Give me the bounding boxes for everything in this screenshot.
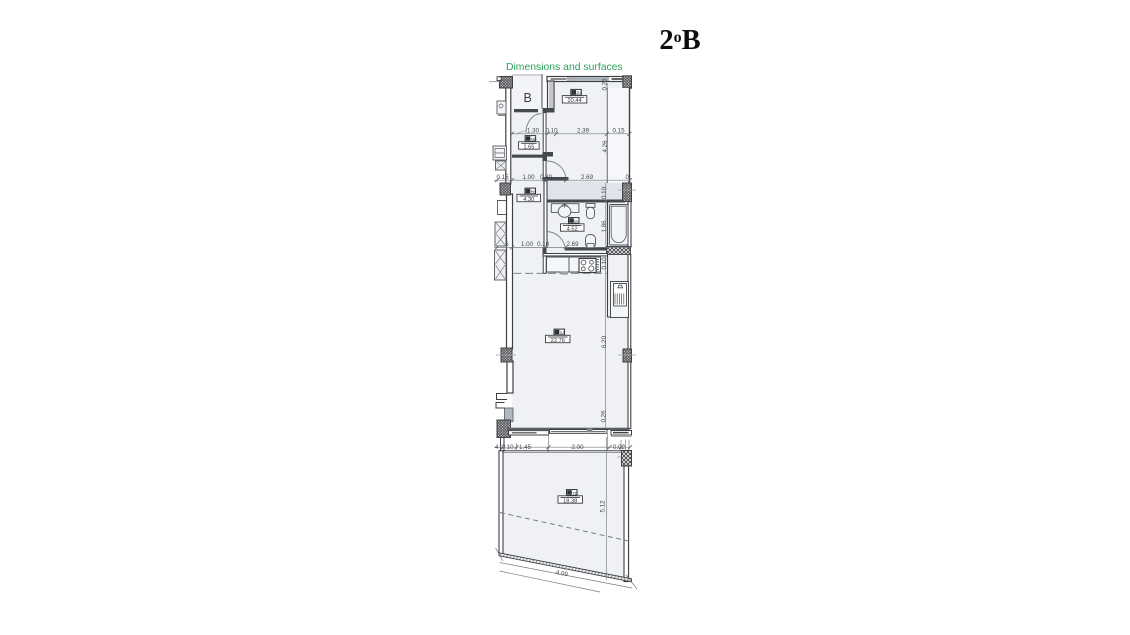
svg-text:4: 4 <box>495 444 499 451</box>
svg-text:0.10: 0.10 <box>601 186 608 199</box>
svg-text:1.65: 1.65 <box>523 144 534 150</box>
svg-text:0.26: 0.26 <box>601 410 608 423</box>
svg-text:2.69: 2.69 <box>581 174 594 181</box>
svg-text:4.09: 4.09 <box>555 569 569 578</box>
svg-text:18.38: 18.38 <box>563 498 577 504</box>
svg-text:0.30: 0.30 <box>540 174 553 181</box>
svg-text:SA: SA <box>560 331 566 335</box>
svg-text:4.30: 4.30 <box>523 197 534 203</box>
svg-text:0.15: 0.15 <box>497 174 510 181</box>
svg-text:2.00: 2.00 <box>572 444 585 451</box>
svg-text:D1: D1 <box>577 91 582 95</box>
svg-text:0.15: 0.15 <box>613 128 626 135</box>
svg-text:0.02: 0.02 <box>613 444 626 451</box>
svg-text:0.10: 0.10 <box>546 128 559 135</box>
svg-text:1.30: 1.30 <box>527 128 540 135</box>
svg-text:1.00: 1.00 <box>523 174 536 181</box>
svg-text:2.39: 2.39 <box>577 128 590 135</box>
svg-text:BI: BI <box>574 219 578 223</box>
svg-text:B: B <box>524 91 532 105</box>
svg-text:0.26: 0.26 <box>602 78 609 91</box>
svg-text:5.12: 5.12 <box>600 500 607 513</box>
svg-text:0.10: 0.10 <box>601 257 608 270</box>
svg-text:TE: TE <box>572 491 577 495</box>
svg-text:0.10: 0.10 <box>502 444 515 451</box>
svg-text:2.69: 2.69 <box>567 241 580 248</box>
svg-text:1.45: 1.45 <box>519 444 532 451</box>
svg-text:PA: PA <box>531 190 536 194</box>
svg-text:MB: MB <box>531 137 537 141</box>
svg-text:0: 0 <box>626 174 630 181</box>
svg-text:22.76: 22.76 <box>551 338 565 344</box>
svg-text:6.20: 6.20 <box>601 335 608 348</box>
svg-text:1.86: 1.86 <box>601 220 608 233</box>
svg-text:0.10: 0.10 <box>537 241 550 248</box>
svg-text:1.00: 1.00 <box>521 241 534 248</box>
svg-text:4.26: 4.26 <box>602 140 609 153</box>
svg-text:10.44: 10.44 <box>567 98 581 104</box>
svg-text:4.52: 4.52 <box>567 226 578 232</box>
